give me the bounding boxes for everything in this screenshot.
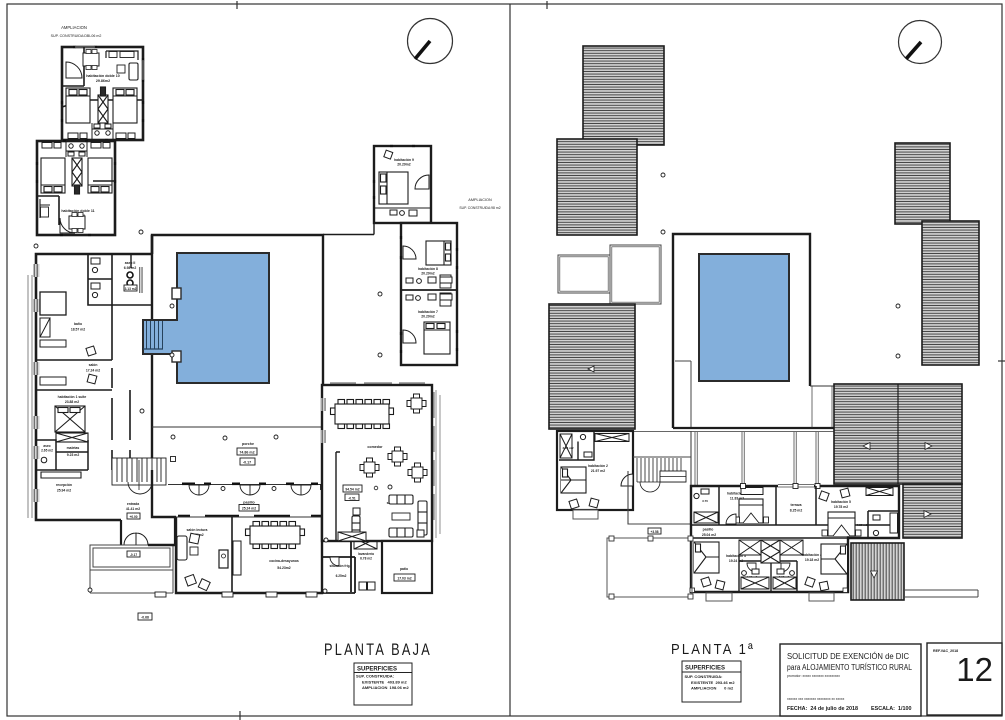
- svg-text:21.97 m2: 21.97 m2: [591, 469, 605, 473]
- svg-text:aseo II: aseo II: [125, 261, 136, 265]
- svg-text:salón: salón: [89, 363, 98, 367]
- svg-text:25.24 m2: 25.24 m2: [242, 507, 256, 511]
- svg-text:REF.VAC_2018: REF.VAC_2018: [933, 649, 958, 653]
- svg-text:3.16 m2: 3.16 m2: [562, 446, 573, 450]
- svg-text:SUP. CONSTRUIDA:: SUP. CONSTRUIDA:: [685, 674, 723, 679]
- svg-text:+3.58: +3.58: [650, 530, 658, 534]
- svg-text:+0.00: +0.00: [129, 515, 137, 519]
- svg-text:20.29m2: 20.29m2: [421, 272, 434, 276]
- svg-text:comedor: comedor: [367, 445, 383, 449]
- svg-text:8.25 m2: 8.25 m2: [790, 509, 803, 513]
- svg-text:AMPLIACION: AMPLIACION: [468, 198, 492, 202]
- svg-text:pasillo: pasillo: [703, 528, 714, 532]
- svg-text:9.23 m2: 9.23 m2: [67, 453, 80, 457]
- svg-text:-0.17: -0.17: [243, 461, 251, 465]
- svg-text:habitación 4: habitación 4: [802, 553, 822, 557]
- svg-text:salón lectura: salón lectura: [187, 528, 208, 532]
- svg-text:porche: porche: [242, 442, 254, 446]
- svg-text:habitación 7: habitación 7: [418, 310, 438, 314]
- svg-text:74.86 m2: 74.86 m2: [239, 451, 254, 455]
- svg-text:19.78 m2: 19.78 m2: [834, 505, 848, 509]
- svg-text:cocina-desayunos: cocina-desayunos: [269, 559, 299, 563]
- svg-text:maletas: maletas: [67, 446, 80, 450]
- svg-text:PLANTA 1ª: PLANTA 1ª: [671, 641, 755, 658]
- svg-text:habitación 2: habitación 2: [588, 464, 608, 468]
- svg-text:6.78 m2: 6.78 m2: [360, 557, 372, 561]
- svg-text:19.18 m2: 19.18 m2: [805, 558, 819, 562]
- svg-text:6.98 m2: 6.98 m2: [124, 266, 137, 270]
- svg-text:6.25m2: 6.25m2: [336, 574, 347, 578]
- svg-text:aseo: aseo: [43, 444, 50, 448]
- svg-text:SOLICITUD DE EXENCIÓN de DIC: SOLICITUD DE EXENCIÓN de DIC: [787, 651, 909, 661]
- svg-text:SUP. CONSTRUIDA:98 m2: SUP. CONSTRUIDA:98 m2: [459, 206, 500, 210]
- svg-text:xxxxxx xxx xxxxxxx xxxxxxxx xx: xxxxxx xxx xxxxxxx xxxxxxxx xx xxxxx: [787, 697, 845, 701]
- svg-text:promotor: xxxxx xxxxxxx xxxxxx: promotor: xxxxx xxxxxxx xxxxxxxxx: [787, 674, 840, 678]
- svg-text:lavandería: lavandería: [358, 552, 374, 556]
- svg-text:recepción: recepción: [56, 483, 72, 487]
- svg-text:situación frig.: situación frig.: [330, 564, 351, 568]
- svg-text:25.94 m2: 25.94 m2: [57, 489, 71, 493]
- svg-text:habitación 1 suite: habitación 1 suite: [58, 395, 87, 399]
- svg-text:2.65 m2: 2.65 m2: [41, 449, 53, 453]
- svg-text:54.23m2: 54.23m2: [277, 566, 290, 570]
- svg-text:para ALOJAMIENTO TURÍSTICO RUR: para ALOJAMIENTO TURÍSTICO RURAL: [787, 663, 912, 672]
- svg-text:AMPLIACION: AMPLIACION: [61, 25, 87, 30]
- svg-text:94.54 m2: 94.54 m2: [345, 488, 359, 492]
- svg-text:-0.17: -0.17: [130, 553, 137, 557]
- svg-text:terraza: terraza: [790, 503, 801, 507]
- svg-text:29.86m2: 29.86m2: [96, 79, 110, 83]
- svg-text:habitación doble 10: habitación doble 10: [86, 74, 120, 78]
- svg-text:20.29m2: 20.29m2: [421, 315, 434, 319]
- svg-text:AMPLIACION 0 m2: AMPLIACION 0 m2: [691, 686, 734, 691]
- svg-text:patio: patio: [400, 567, 408, 571]
- svg-text:EXISTENTE 293.46 m2: EXISTENTE 293.46 m2: [691, 680, 735, 685]
- svg-text:habitación 5: habitación 5: [831, 500, 851, 504]
- svg-text:pasillo: pasillo: [243, 501, 255, 505]
- svg-text:entrada: entrada: [127, 502, 139, 506]
- svg-text:EXISTENTE 403.89 m2: EXISTENTE 403.89 m2: [362, 680, 407, 685]
- svg-text:41.41 m2: 41.41 m2: [126, 507, 140, 511]
- svg-text:3.13 m2: 3.13 m2: [125, 287, 137, 291]
- svg-text:SUP. CONSTRUIDA:: SUP. CONSTRUIDA:: [356, 674, 394, 679]
- svg-text:17.24 m2: 17.24 m2: [86, 369, 100, 373]
- svg-text:AMPLIACION 198.06 m2: AMPLIACION 198.06 m2: [362, 685, 409, 690]
- svg-text:4.92 m2: 4.92 m2: [856, 523, 867, 527]
- svg-text:20.29m2: 20.29m2: [397, 163, 410, 167]
- svg-text:-0.51: -0.51: [348, 497, 355, 501]
- svg-text:SUP. CONSTRUIDA:DBL06 m2: SUP. CONSTRUIDA:DBL06 m2: [51, 34, 102, 38]
- svg-text:17.03 m2: 17.03 m2: [397, 577, 411, 581]
- svg-text:habitación 8: habitación 8: [418, 267, 438, 271]
- svg-text:18.57 m2: 18.57 m2: [71, 328, 85, 332]
- svg-text:PLANTA BAJA: PLANTA BAJA: [324, 640, 432, 659]
- svg-text:25.04 m2: 25.04 m2: [702, 533, 716, 537]
- svg-text:12: 12: [956, 651, 993, 688]
- svg-text:habitación 9: habitación 9: [394, 158, 414, 162]
- svg-text:SUPERFICIES: SUPERFICIES: [357, 667, 397, 673]
- svg-text:-0.68: -0.68: [141, 616, 149, 620]
- svg-text:FECHA: 24 de julio de 2018: FECHA: 24 de julio de 2018: [787, 706, 858, 712]
- svg-text:23.88 m2: 23.88 m2: [65, 400, 79, 404]
- svg-text:baño: baño: [74, 322, 82, 326]
- svg-text:3.70: 3.70: [702, 499, 708, 503]
- svg-text:ESCALA: 1/100: ESCALA: 1/100: [871, 706, 911, 712]
- svg-text:SUPERFICIES: SUPERFICIES: [685, 666, 725, 672]
